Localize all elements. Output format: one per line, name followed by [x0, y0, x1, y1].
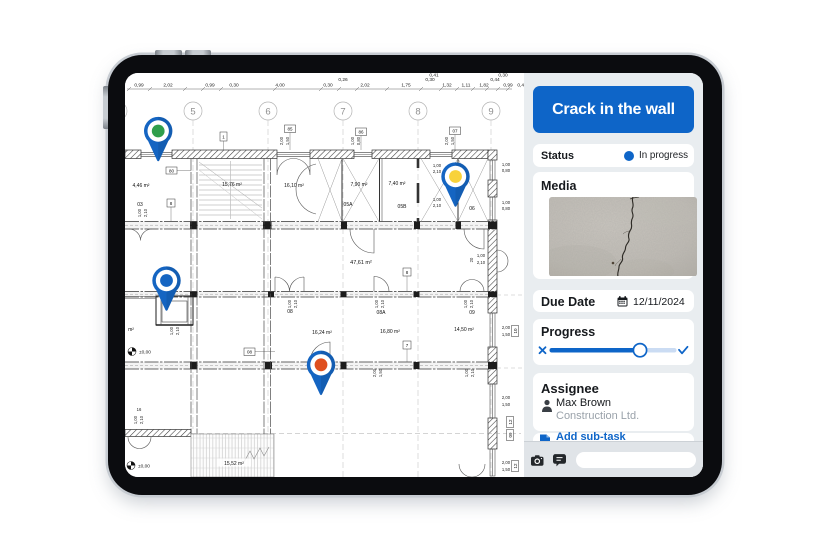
- svg-text:08: 08: [247, 350, 253, 355]
- svg-text:±0,00: ±0,00: [138, 464, 150, 470]
- svg-text:8: 8: [415, 107, 420, 118]
- svg-text:2,10: 2,10: [470, 368, 475, 377]
- svg-text:0,80: 0,80: [502, 206, 511, 211]
- svg-text:1,00: 1,00: [477, 253, 486, 258]
- svg-text:15,76 m²: 15,76 m²: [222, 182, 242, 188]
- svg-text:0,99: 0,99: [205, 83, 215, 89]
- svg-text:2,10: 2,10: [433, 203, 442, 208]
- svg-text:12: 12: [508, 419, 513, 425]
- svg-text:2,00: 2,00: [444, 136, 449, 145]
- svg-text:1,50: 1,50: [450, 136, 455, 145]
- svg-text:1,00: 1,00: [137, 208, 142, 217]
- svg-text:0,26: 0,26: [338, 77, 348, 83]
- svg-text:1,00: 1,00: [374, 299, 379, 308]
- svg-text:0,30: 0,30: [229, 83, 239, 89]
- svg-text:0,45: 0,45: [517, 83, 524, 89]
- svg-text:1,00: 1,00: [169, 326, 174, 335]
- svg-text:±0,00: ±0,00: [139, 350, 151, 356]
- svg-text:1,32: 1,32: [442, 83, 452, 89]
- svg-text:0,41: 0,41: [429, 73, 439, 79]
- svg-text:2,00: 2,00: [279, 136, 284, 145]
- svg-text:7: 7: [340, 107, 345, 118]
- svg-text:1,50: 1,50: [502, 332, 511, 337]
- svg-text:2,10: 2,10: [293, 299, 298, 308]
- svg-text:0,80: 0,80: [356, 136, 361, 145]
- svg-text:4,46 m²: 4,46 m²: [133, 183, 150, 189]
- svg-text:m²: m²: [128, 327, 134, 333]
- svg-text:2,00: 2,00: [502, 395, 511, 400]
- svg-text:2,10: 2,10: [139, 415, 144, 424]
- svg-text:16,80 m²: 16,80 m²: [380, 329, 400, 335]
- svg-text:1,00: 1,00: [463, 299, 468, 308]
- svg-text:0,99: 0,99: [134, 83, 144, 89]
- svg-text:47,61 m²: 47,61 m²: [350, 260, 372, 266]
- svg-text:16,10 m²: 16,10 m²: [284, 183, 304, 189]
- svg-text:2,10: 2,10: [380, 299, 385, 308]
- svg-text:1,50: 1,50: [378, 368, 383, 377]
- svg-text:1,50: 1,50: [502, 402, 511, 407]
- svg-text:05B: 05B: [398, 204, 408, 210]
- svg-text:1,00: 1,00: [287, 299, 292, 308]
- svg-text:80: 80: [169, 169, 175, 174]
- svg-text:05A: 05A: [344, 202, 354, 208]
- svg-text:1,00: 1,00: [433, 197, 442, 202]
- svg-text:1,11: 1,11: [462, 83, 471, 89]
- svg-text:08: 08: [287, 309, 293, 315]
- svg-text:09: 09: [469, 310, 475, 316]
- svg-text:7,40 m²: 7,40 m²: [389, 181, 406, 187]
- svg-text:2,02: 2,02: [360, 83, 370, 89]
- svg-text:0,30: 0,30: [323, 83, 333, 89]
- svg-text:1,00: 1,00: [464, 368, 469, 377]
- svg-text:1,00: 1,00: [502, 200, 511, 205]
- svg-text:2,02: 2,02: [163, 83, 173, 89]
- svg-text:7,90 m²: 7,90 m²: [351, 182, 368, 188]
- svg-text:5: 5: [190, 107, 195, 118]
- svg-text:1,00: 1,00: [133, 415, 138, 424]
- svg-text:2,10: 2,10: [143, 208, 148, 217]
- svg-text:9: 9: [488, 107, 493, 118]
- svg-text:1,82: 1,82: [479, 83, 489, 89]
- svg-text:03: 03: [137, 202, 143, 208]
- svg-text:14,50 m²: 14,50 m²: [454, 327, 474, 333]
- svg-text:12: 12: [513, 463, 518, 469]
- svg-text:15,52 m²: 15,52 m²: [224, 461, 244, 467]
- svg-text:08A: 08A: [377, 310, 387, 316]
- svg-text:07: 07: [452, 129, 458, 134]
- svg-text:16,24 m²: 16,24 m²: [312, 330, 332, 336]
- svg-text:1,00: 1,00: [433, 163, 442, 168]
- svg-text:2,10: 2,10: [175, 326, 180, 335]
- svg-text:1,50: 1,50: [285, 136, 290, 145]
- svg-text:1,00: 1,00: [502, 162, 511, 167]
- svg-text:86: 86: [358, 130, 364, 135]
- svg-text:09: 09: [508, 432, 513, 438]
- svg-text:2,10: 2,10: [469, 299, 474, 308]
- svg-text:1,50: 1,50: [502, 467, 511, 472]
- svg-text:0,99: 0,99: [503, 83, 513, 89]
- svg-text:4,00: 4,00: [275, 83, 285, 89]
- svg-text:2,00: 2,00: [372, 368, 377, 377]
- svg-text:2,00: 2,00: [502, 325, 511, 330]
- svg-text:10: 10: [513, 328, 518, 334]
- svg-text:6: 6: [265, 107, 270, 118]
- svg-text:85: 85: [287, 127, 293, 132]
- svg-text:2,10: 2,10: [433, 169, 442, 174]
- svg-text:20: 20: [469, 257, 474, 262]
- svg-text:2,00: 2,00: [502, 460, 511, 465]
- svg-text:1,75: 1,75: [401, 83, 411, 89]
- svg-text:06: 06: [469, 206, 475, 212]
- svg-text:0,80: 0,80: [502, 168, 511, 173]
- svg-text:16: 16: [137, 407, 142, 412]
- svg-text:0,30: 0,30: [498, 73, 508, 79]
- svg-text:2,10: 2,10: [477, 260, 486, 265]
- svg-text:1,00: 1,00: [350, 136, 355, 145]
